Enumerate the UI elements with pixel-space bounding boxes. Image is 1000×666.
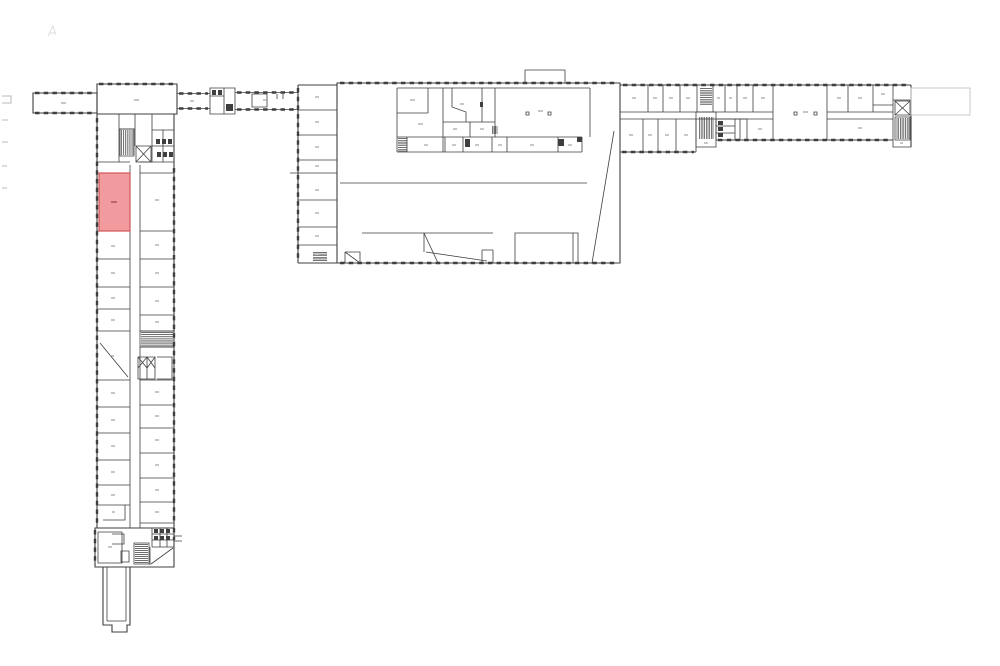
floor-plan-page	[0, 0, 1000, 666]
right-wing	[620, 85, 911, 152]
hall-stage	[515, 233, 578, 263]
link-corridors	[177, 88, 298, 114]
hall-long-diagonal	[592, 131, 614, 263]
left-wing-corridor	[130, 165, 140, 528]
floor-plan	[0, 0, 1000, 666]
fixtures	[154, 90, 723, 540]
hall-corner-ramp	[345, 252, 360, 263]
hall-platform	[362, 233, 493, 263]
edge-ticks	[2, 96, 11, 188]
assembly-hall	[337, 70, 620, 263]
roof-protrusion	[525, 70, 565, 83]
central-west-strip	[290, 85, 337, 263]
hall-columns	[526, 112, 551, 115]
stair-icon	[140, 331, 174, 347]
adjacent-building-outline	[911, 88, 970, 115]
room-labels	[61, 94, 903, 547]
left-wing-service-area	[97, 114, 174, 162]
bottom-block	[95, 528, 182, 632]
stair-hatching	[122, 89, 909, 563]
elevator-icon	[138, 357, 172, 379]
north-mark-icon	[48, 26, 56, 36]
top-left-block	[97, 84, 177, 114]
right-wing-corridor	[620, 112, 893, 119]
elevator-icon	[136, 146, 151, 162]
